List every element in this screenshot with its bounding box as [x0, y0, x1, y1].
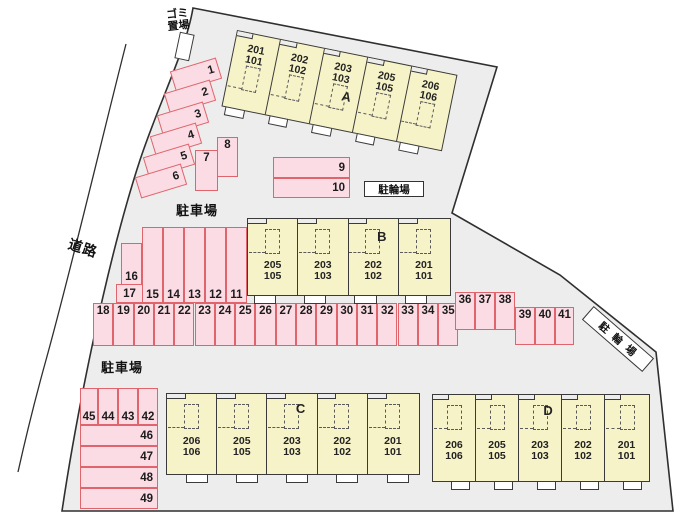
building-letter-c: C [296, 401, 305, 416]
building-b: 205 105203 103202 102B201 101 [247, 218, 451, 296]
unit-numbers: 201 101 [368, 436, 418, 458]
unit-porch [304, 295, 326, 304]
stairs-icon [416, 229, 431, 254]
stairs-icon [234, 404, 249, 429]
building-d-unit-205-105: 205 105 [476, 395, 519, 481]
unit-porch [494, 481, 513, 490]
parking-lot-label-bottom: 駐車場 [101, 357, 143, 376]
stairs-icon [334, 404, 349, 429]
stairs-icon [447, 405, 462, 430]
building-b-unit-202-102: 202 102B [349, 219, 399, 295]
unit-porch [186, 474, 208, 483]
building-letter-b: B [377, 229, 386, 244]
unit-porch [405, 295, 428, 304]
garbage-area-label: ゴミ置場 [166, 7, 194, 34]
unit-numbers: 206 106 [167, 436, 216, 458]
unit-entry-notch [349, 219, 368, 224]
stairs-icon [415, 101, 435, 128]
stairs-dashed-line [520, 428, 533, 429]
stairs-icon [371, 92, 391, 119]
building-d-unit-202-102: 202 102 [562, 395, 605, 481]
unit-numbers: 206 106 [433, 440, 475, 462]
building-d: 206 106205 105203 103D202 102201 101 [432, 394, 650, 482]
unit-entry-notch [562, 395, 578, 400]
unit-entry-notch [476, 395, 492, 400]
unit-numbers: 205 105 [362, 67, 409, 97]
stairs-dashed-line [606, 428, 620, 429]
unit-numbers: 202 102 [318, 436, 367, 458]
building-c-unit-203-103: 203 103C [267, 394, 317, 474]
unit-entry-notch [368, 394, 387, 399]
stairs-dashed-line [218, 427, 234, 428]
unit-numbers: 205 105 [217, 436, 266, 458]
stairs-dashed-line [249, 252, 265, 253]
unit-porch [623, 481, 642, 490]
unit-entry-notch [367, 58, 384, 66]
stairs-dashed-line [268, 427, 284, 428]
stairs-icon [385, 404, 400, 429]
building-c-unit-206-106: 206 106 [167, 394, 217, 474]
building-a: 201 101202 102203 103A205 105206 106 [221, 30, 457, 151]
unit-porch [236, 474, 258, 483]
unit-porch [224, 106, 245, 119]
bicycle-parking-label-top: 駐輪場 [364, 181, 424, 197]
unit-entry-notch [167, 394, 186, 399]
unit-entry-notch [399, 219, 418, 224]
stairs-dashed-line [227, 85, 241, 89]
stairs-dashed-line [369, 427, 385, 428]
stairs-dashed-line [434, 428, 447, 429]
unit-porch [286, 474, 308, 483]
building-b-unit-205-105: 205 105 [248, 219, 298, 295]
unit-porch [387, 474, 410, 483]
unit-porch [354, 295, 376, 304]
unit-numbers: 203 103 [267, 436, 316, 458]
parking-lot-label-top: 駐車場 [176, 200, 218, 219]
stairs-dashed-line [314, 103, 328, 107]
stairs-icon [241, 65, 261, 92]
stairs-dashed-line [402, 121, 416, 125]
unit-numbers: 203 103 [519, 440, 561, 462]
stairs-icon [284, 74, 304, 101]
unit-entry-notch [433, 395, 449, 400]
building-c-unit-205-105: 205 105 [217, 394, 267, 474]
unit-numbers: 201 101 [231, 41, 278, 71]
unit-entry-notch [267, 394, 286, 399]
unit-numbers: 202 102 [275, 50, 322, 80]
unit-numbers: 206 106 [405, 76, 453, 106]
stairs-icon [265, 229, 280, 254]
building-d-unit-201-101: 201 101 [605, 395, 648, 481]
unit-entry-notch [248, 219, 267, 224]
building-c: 206 106205 105203 103C202 102201 101 [166, 393, 420, 475]
unit-porch [580, 481, 599, 490]
building-c-unit-201-101: 201 101 [368, 394, 418, 474]
unit-entry-notch [605, 395, 621, 400]
unit-porch [355, 133, 376, 146]
unit-entry-notch [280, 40, 297, 48]
unit-numbers: 202 102 [562, 440, 604, 462]
unit-numbers: 205 105 [248, 260, 297, 282]
building-letter-a: A [340, 88, 352, 105]
unit-entry-notch [519, 395, 535, 400]
stairs-dashed-line [271, 94, 285, 98]
stairs-icon [184, 404, 199, 429]
stairs-icon [576, 405, 591, 430]
unit-entry-notch [318, 394, 337, 399]
stairs-dashed-line [319, 427, 335, 428]
unit-porch [268, 115, 289, 128]
unit-porch [254, 295, 276, 304]
building-b-unit-203-103: 203 103 [298, 219, 348, 295]
stairs-dashed-line [168, 427, 184, 428]
building-d-unit-206-106: 206 106 [433, 395, 476, 481]
stairs-dashed-line [400, 252, 416, 253]
stairs-icon [315, 229, 330, 254]
stairs-dashed-line [477, 428, 490, 429]
unit-numbers: 205 105 [476, 440, 518, 462]
stairs-icon [620, 405, 635, 430]
unit-entry-notch [298, 219, 317, 224]
buildings-layer: 201 101202 102203 103A205 105206 106205 … [0, 0, 700, 521]
unit-numbers: 201 101 [605, 440, 648, 462]
stairs-dashed-line [299, 252, 315, 253]
building-d-unit-203-103: 203 103D [519, 395, 562, 481]
stairs-icon [490, 405, 505, 430]
unit-porch [336, 474, 358, 483]
unit-entry-notch [217, 394, 236, 399]
building-letter-d: D [543, 403, 552, 418]
unit-numbers: 202 102 [349, 260, 398, 282]
building-b-unit-201-101: 201 101 [399, 219, 449, 295]
stairs-dashed-line [349, 252, 365, 253]
stairs-dashed-line [358, 112, 372, 116]
unit-numbers: 203 103 [318, 59, 365, 89]
stairs-dashed-line [563, 428, 576, 429]
unit-numbers: 203 103 [298, 260, 347, 282]
building-c-unit-202-102: 202 102 [318, 394, 368, 474]
site-map: 1234567891011121314151617181920212223242… [0, 0, 700, 521]
unit-entry-notch [237, 31, 254, 39]
unit-porch [311, 124, 332, 137]
unit-porch [451, 481, 470, 490]
unit-porch [398, 142, 419, 155]
unit-entry-notch [411, 67, 429, 75]
unit-entry-notch [324, 49, 341, 57]
unit-numbers: 201 101 [399, 260, 449, 282]
unit-porch [537, 481, 556, 490]
